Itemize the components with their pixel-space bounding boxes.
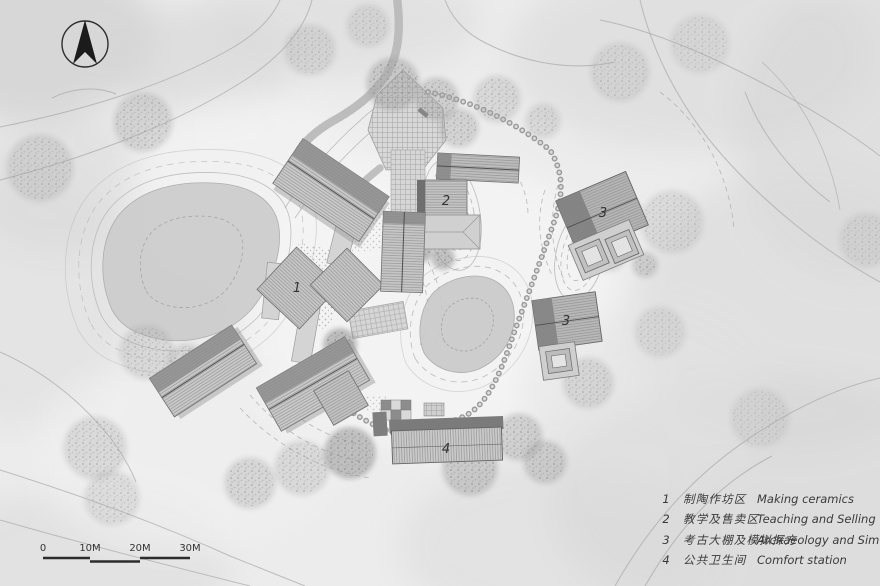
building-2-vertical-wing <box>381 211 426 292</box>
svg-text:4: 4 <box>662 553 669 567</box>
legend-item: 1 制陶作坊区 Making ceramics <box>662 492 854 506</box>
building-marker-4: 4 <box>442 442 450 457</box>
excavation-pit-south <box>539 342 579 381</box>
building-marker-2: 2 <box>442 194 450 209</box>
legend-item: 3 考古大棚及模拟探方 Archaeology and Simulation <box>662 533 880 547</box>
site-plan-drawing: 1 2 3 3 4 0 10M 20M 30M 1 制陶作坊区 Making c… <box>0 0 880 586</box>
building-marker-1: 1 <box>293 281 301 296</box>
building-marker-3b: 3 <box>562 314 570 329</box>
svg-text:3: 3 <box>662 533 669 547</box>
scale-tick-10m: 10M <box>79 543 100 554</box>
svg-text:Making ceramics: Making ceramics <box>757 492 854 506</box>
scale-tick-0: 0 <box>40 543 46 554</box>
legend-item: 2 教学及售卖区 Teaching and Selling <box>662 512 875 526</box>
site-plan-page: 1 2 3 3 4 0 10M 20M 30M 1 制陶作坊区 Making c… <box>0 0 880 586</box>
svg-text:公共卫生间: 公共卫生间 <box>683 553 747 567</box>
svg-text:Archaeology and Simulation: Archaeology and Simulation <box>756 533 880 547</box>
svg-text:制陶作坊区: 制陶作坊区 <box>683 492 747 506</box>
svg-text:Teaching and Selling: Teaching and Selling <box>757 512 876 526</box>
svg-text:教学及售卖区: 教学及售卖区 <box>683 512 759 526</box>
svg-text:2: 2 <box>662 512 669 526</box>
svg-text:1: 1 <box>662 492 669 506</box>
scale-tick-30m: 30M <box>179 543 200 554</box>
building-2-top-bar <box>436 153 519 183</box>
scale-tick-20m: 20M <box>129 543 150 554</box>
svg-text:Comfort station: Comfort station <box>757 553 847 567</box>
building-marker-3a: 3 <box>599 206 607 221</box>
